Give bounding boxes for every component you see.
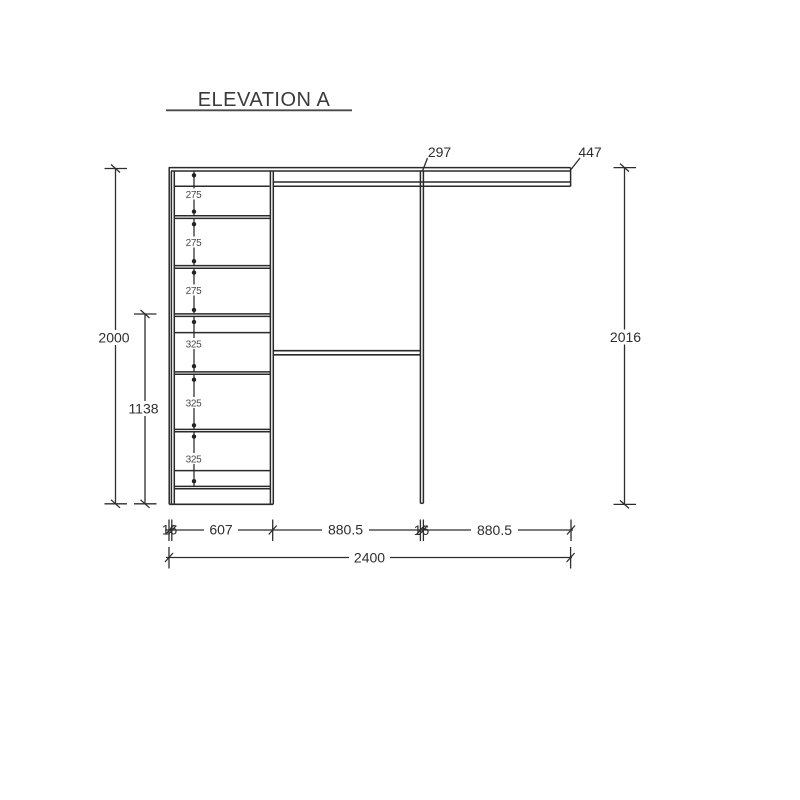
svg-text:16: 16 (414, 522, 430, 538)
svg-text:1138: 1138 (128, 401, 158, 417)
svg-text:275: 275 (186, 286, 203, 297)
svg-text:297: 297 (428, 144, 452, 160)
svg-text:880.5: 880.5 (477, 522, 512, 538)
svg-text:447: 447 (578, 144, 602, 160)
svg-text:275: 275 (186, 190, 203, 201)
svg-text:607: 607 (209, 522, 233, 538)
svg-text:16: 16 (162, 522, 178, 538)
svg-text:ELEVATION A: ELEVATION A (198, 89, 331, 111)
svg-text:325: 325 (186, 339, 203, 350)
svg-text:880.5: 880.5 (328, 522, 363, 538)
svg-text:325: 325 (186, 454, 203, 465)
svg-text:2400: 2400 (354, 550, 385, 566)
svg-text:2016: 2016 (610, 329, 641, 345)
svg-text:325: 325 (186, 398, 203, 409)
svg-text:2000: 2000 (98, 330, 129, 346)
svg-text:275: 275 (186, 238, 203, 249)
